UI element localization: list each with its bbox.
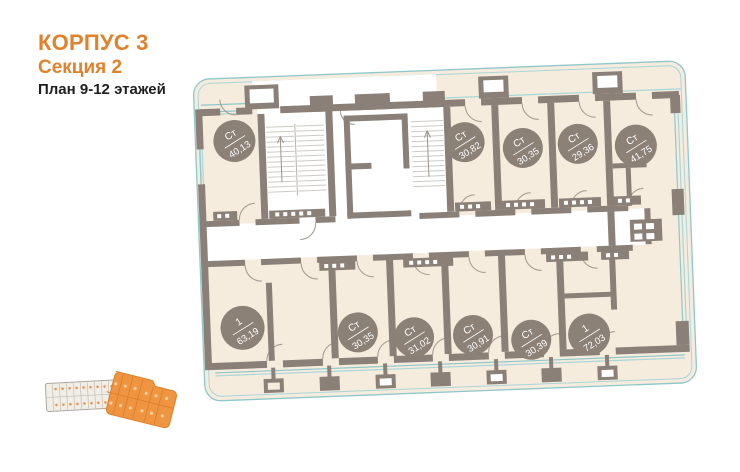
floor-plan-svg: Ст40,13 Ст30,82 Ст30,35 Ст29,36 Ст41,75 … — [0, 0, 740, 472]
minimap — [45, 370, 179, 428]
building-plan: Ст40,13 Ст30,82 Ст30,35 Ст29,36 Ст41,75 … — [193, 61, 697, 402]
minimap-current-section[interactable] — [101, 370, 178, 428]
floor-plan-page: КОРПУС 3 Секция 2 План 9-12 этажей — [0, 0, 740, 472]
